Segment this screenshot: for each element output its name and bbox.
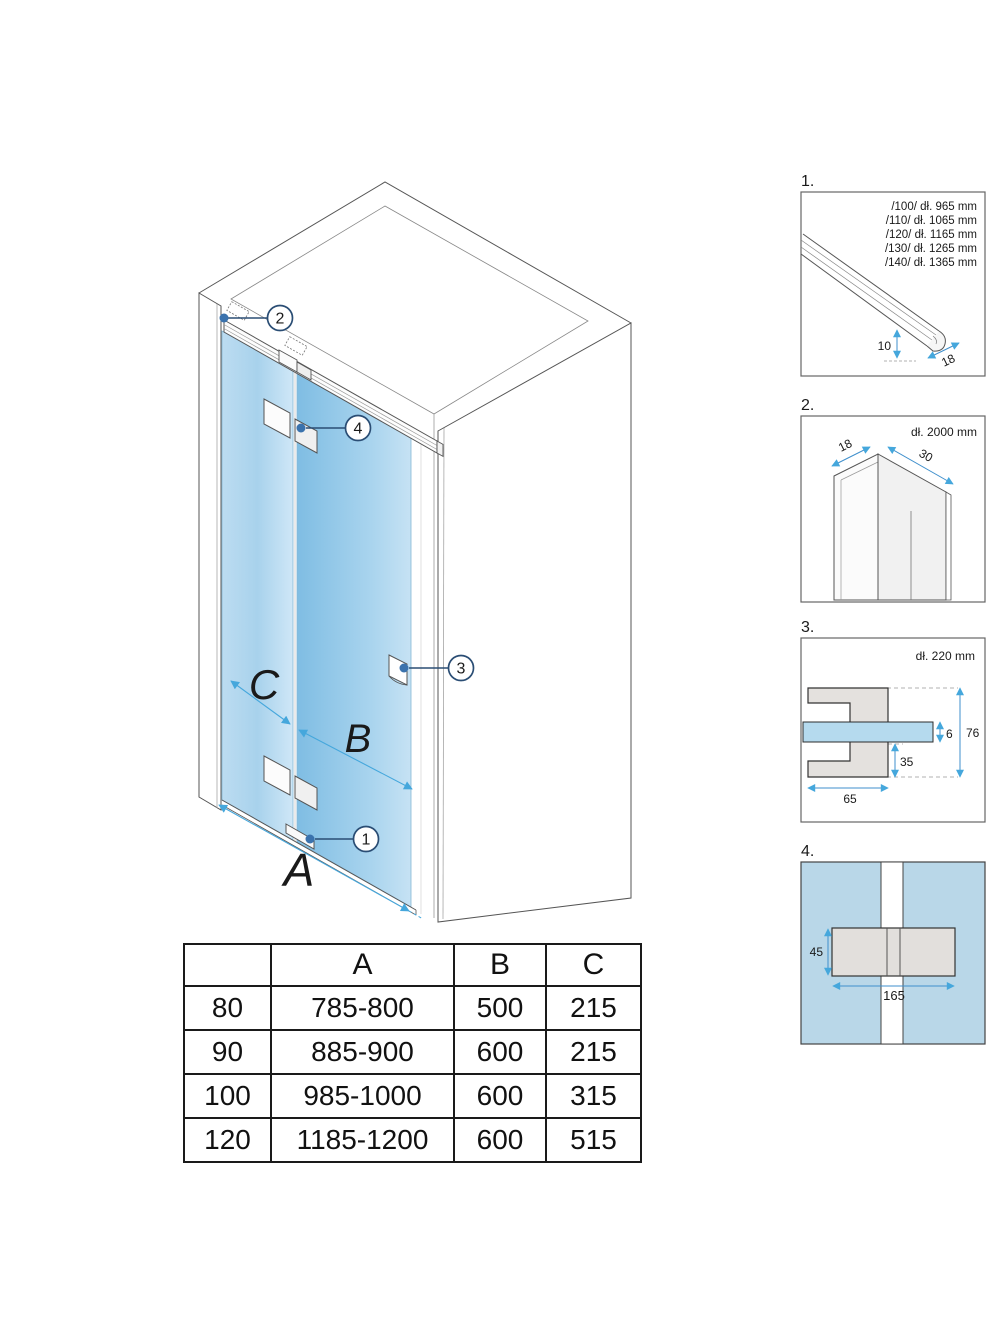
panel-4-dim-height: 45 [810,945,824,959]
header-size [184,944,271,986]
cell-a: 785-800 [271,986,454,1030]
panel-3-label: 3. [801,619,814,636]
detail-panel-3: 3. dł. 220 mm 6 76 35 65 [801,619,985,822]
left-wall-face [199,293,221,810]
cell-a: 985-1000 [271,1074,454,1118]
detail-panel-1: 1. /100/ dł. 965 mm /110/ dł. 1065 mm /1… [801,173,985,376]
cell-size: 80 [184,986,271,1030]
dim-label-a: A [281,844,315,896]
cell-c: 215 [546,1030,641,1074]
panel-3-dim-width: 65 [843,792,857,806]
cell-b: 600 [454,1118,546,1162]
callout-1-number: 1 [362,832,371,849]
panel-2-length-note: dł. 2000 mm [911,425,977,439]
size-table-container: A B C 80 785-800 500 215 90 885-900 600 … [183,943,642,1163]
panel-4-hinge-bracket [832,928,955,976]
panel-3-glass-strip [803,722,933,742]
header-b: B [454,944,546,986]
cell-b: 600 [454,1074,546,1118]
panel-1-line-5: /140/ dł. 1365 mm [885,257,977,269]
dim-label-b: B [345,717,372,761]
table-row: 100 985-1000 600 315 [184,1074,641,1118]
callout-4-number: 4 [354,421,363,438]
ceiling-outer-edges [199,182,631,323]
table-row: 90 885-900 600 215 [184,1030,641,1074]
callout-4-anchor-dot [297,424,306,433]
detail-panel-4: 4. 45 165 [801,843,985,1044]
panel-4-label: 4. [801,843,814,860]
panel-3-length-note: dł. 220 mm [916,649,975,663]
panel-1-line-1: /100/ dł. 965 mm [891,201,977,213]
callout-1-anchor-dot [306,835,315,844]
panel-1-line-2: /110/ dł. 1065 mm [886,215,977,227]
cell-size: 120 [184,1118,271,1162]
header-c: C [546,944,641,986]
callout-3-anchor-dot [400,664,409,673]
glass-panel-swing [297,373,411,907]
panel-3-dim-total: 76 [966,726,980,740]
panel-3-dim-lower: 35 [900,755,914,769]
size-table: A B C 80 785-800 500 215 90 885-900 600 … [183,943,642,1163]
panel-1-label: 1. [801,173,814,190]
callout-2-anchor-dot [220,314,229,323]
main-drawing: C B A 2 4 3 [199,182,631,922]
glass-panel-fixed [222,331,293,840]
panel-4-dim-width: 165 [883,988,905,1003]
callout-2-number: 2 [276,311,285,328]
cell-c: 215 [546,986,641,1030]
cell-c: 315 [546,1074,641,1118]
panel-3-dim-glass: 6 [946,727,953,741]
table-row: 120 1185-1200 600 515 [184,1118,641,1162]
header-a: A [271,944,454,986]
panel-1-length-list: /100/ dł. 965 mm /110/ dł. 1065 mm /120/… [885,201,977,269]
dim-label-c: C [249,661,280,708]
panel-1-line-4: /130/ dł. 1265 mm [885,243,977,255]
panel-1-dim-height: 10 [878,339,892,353]
cell-a: 885-900 [271,1030,454,1074]
cell-b: 500 [454,986,546,1030]
cell-b: 600 [454,1030,546,1074]
rail-center-bracket-plate [285,337,307,356]
panel-1-line-3: /120/ dł. 1165 mm [886,229,977,241]
panel-2-label: 2. [801,397,814,414]
table-row: 80 785-800 500 215 [184,986,641,1030]
size-table-header-row: A B C [184,944,641,986]
panel-2-right-edge [946,492,951,600]
right-wall-face [438,323,631,922]
callout-3-number: 3 [457,661,466,678]
cell-size: 90 [184,1030,271,1074]
cell-c: 515 [546,1118,641,1162]
detail-panel-2: 2. dł. 2000 mm 18 30 [801,397,985,602]
cell-size: 100 [184,1074,271,1118]
cell-a: 1185-1200 [271,1118,454,1162]
panel-2-left-face [834,454,878,600]
